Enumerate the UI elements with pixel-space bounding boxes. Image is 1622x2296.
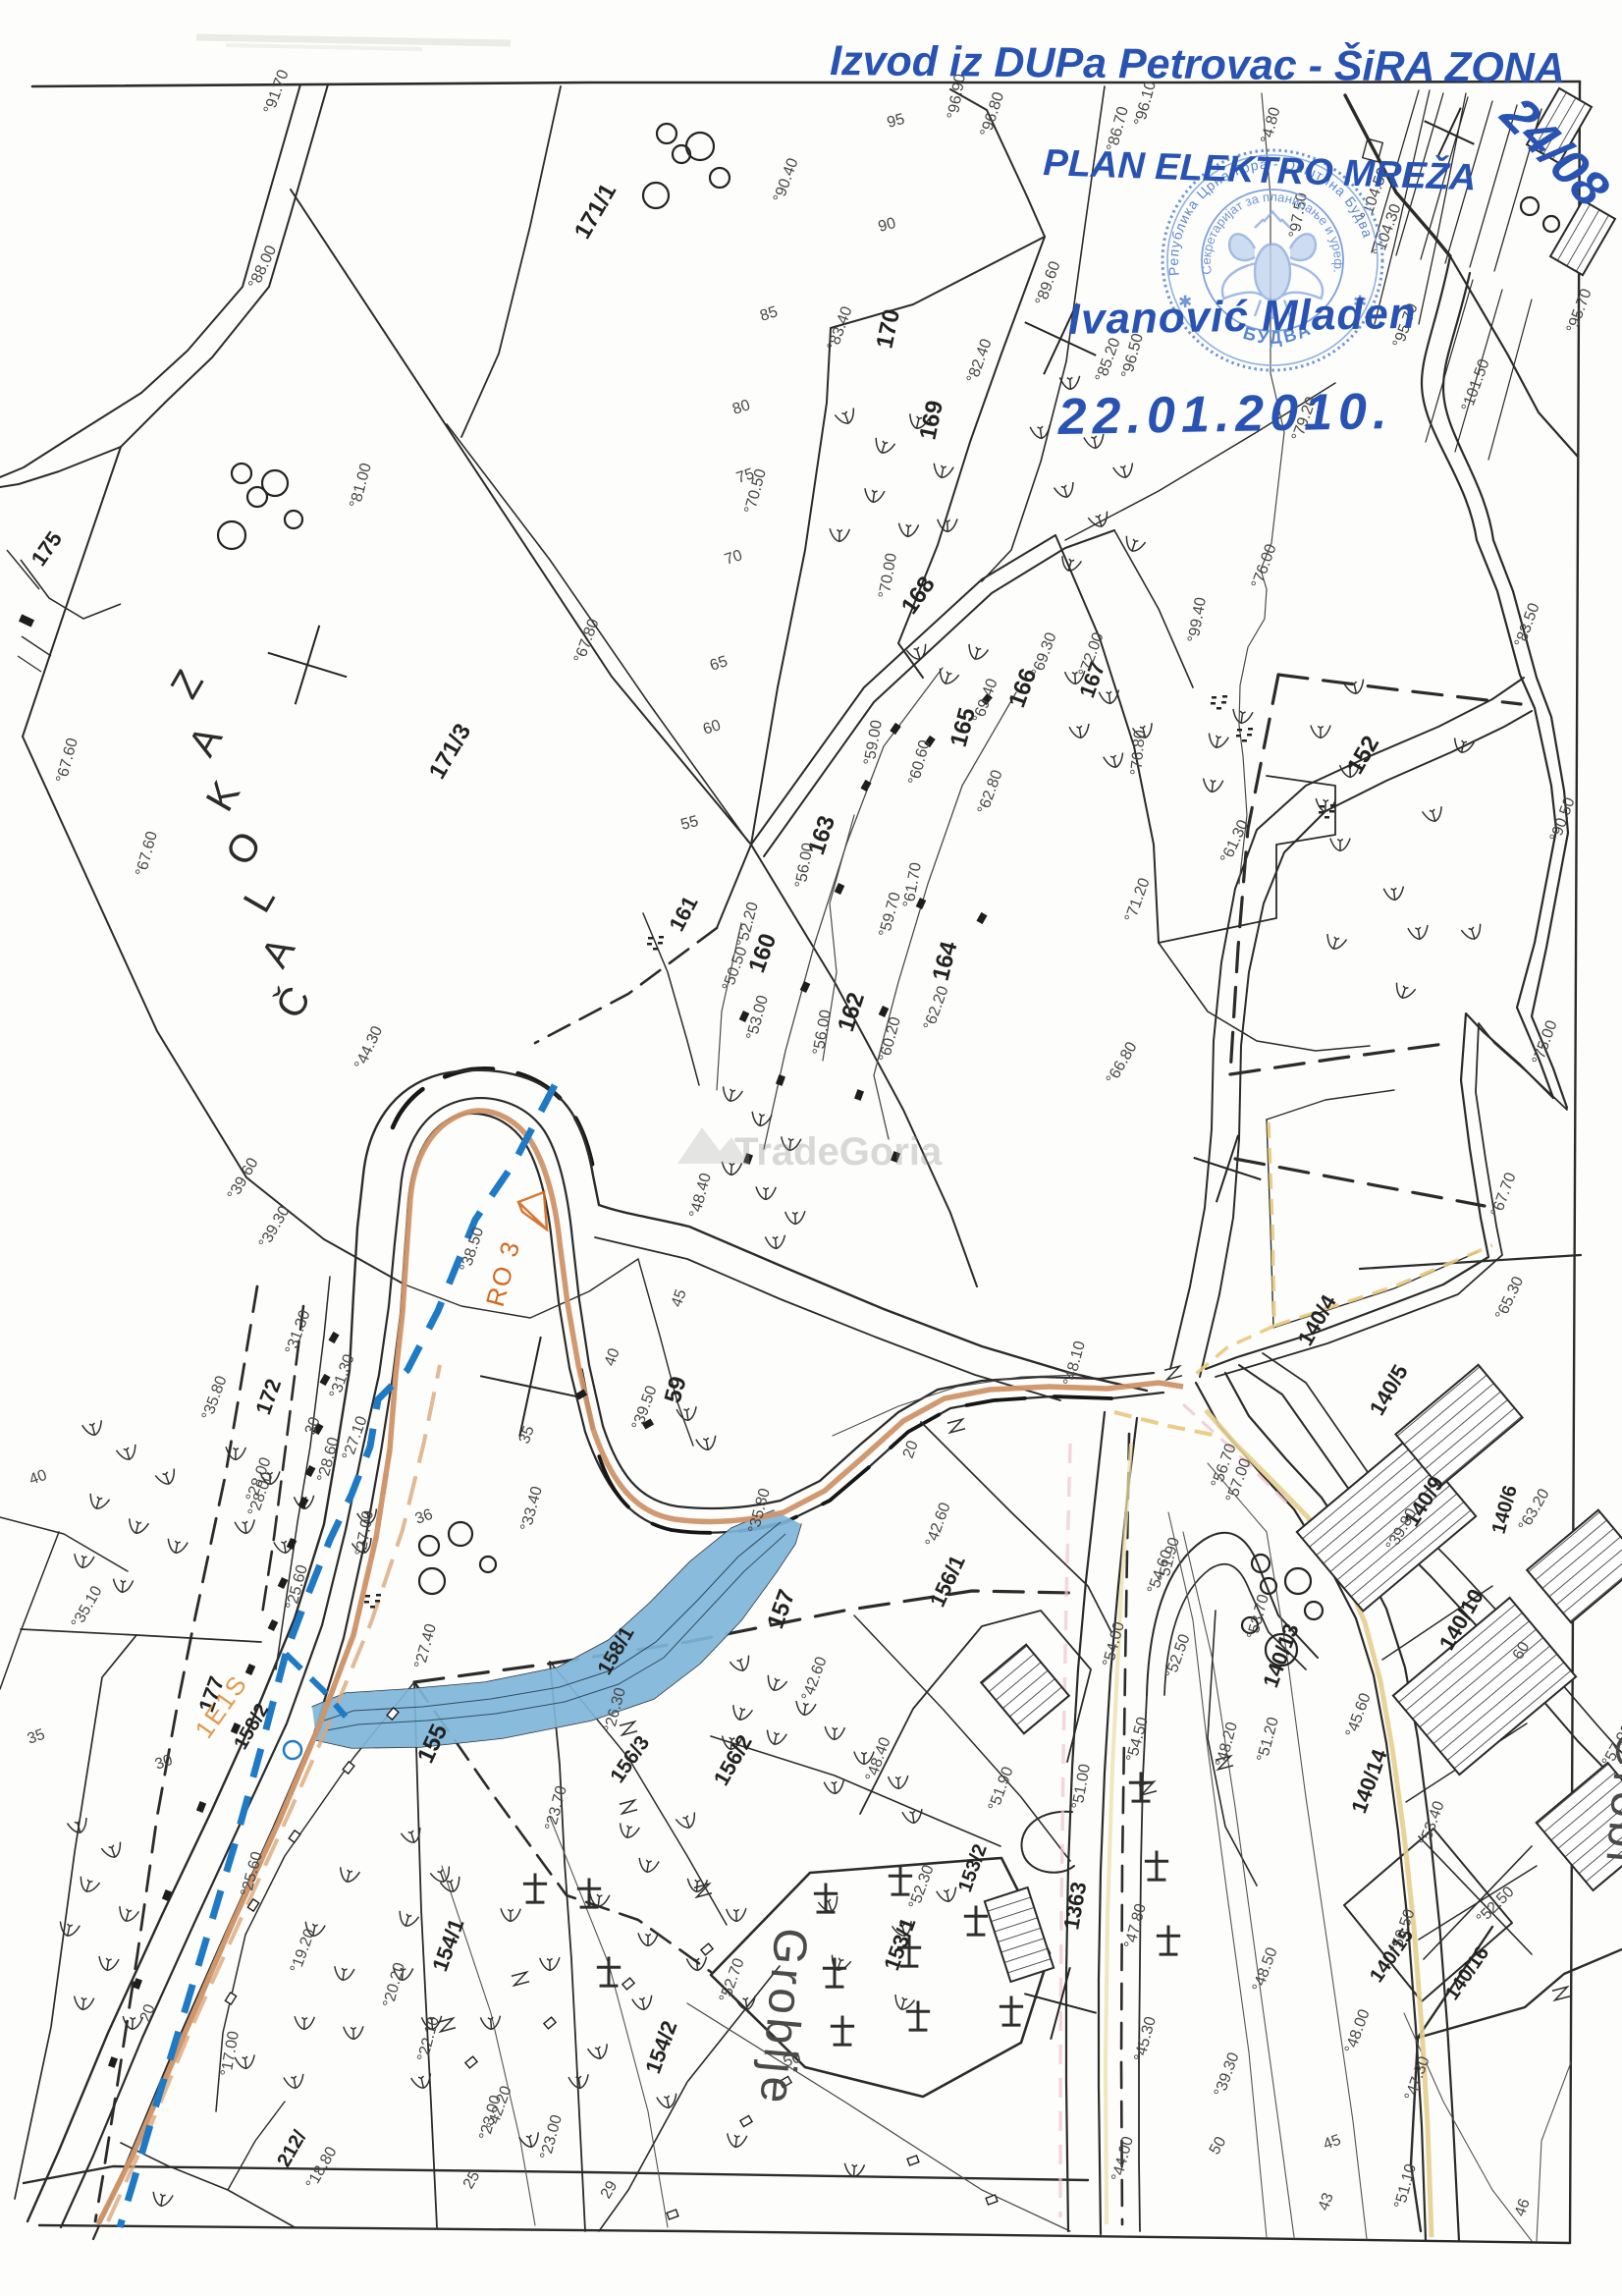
svg-text:Ivanović Mladen: Ivanović Mladen [1067, 290, 1417, 344]
svg-text:TradeGoria: TradeGoria [734, 1130, 943, 1174]
svg-text:22.01.2010.: 22.01.2010. [1056, 383, 1393, 446]
svg-text:Izvod iz DUPa Petrovac - ŠiRA: Izvod iz DUPa Petrovac - ŠiRA ZONA [830, 36, 1565, 92]
